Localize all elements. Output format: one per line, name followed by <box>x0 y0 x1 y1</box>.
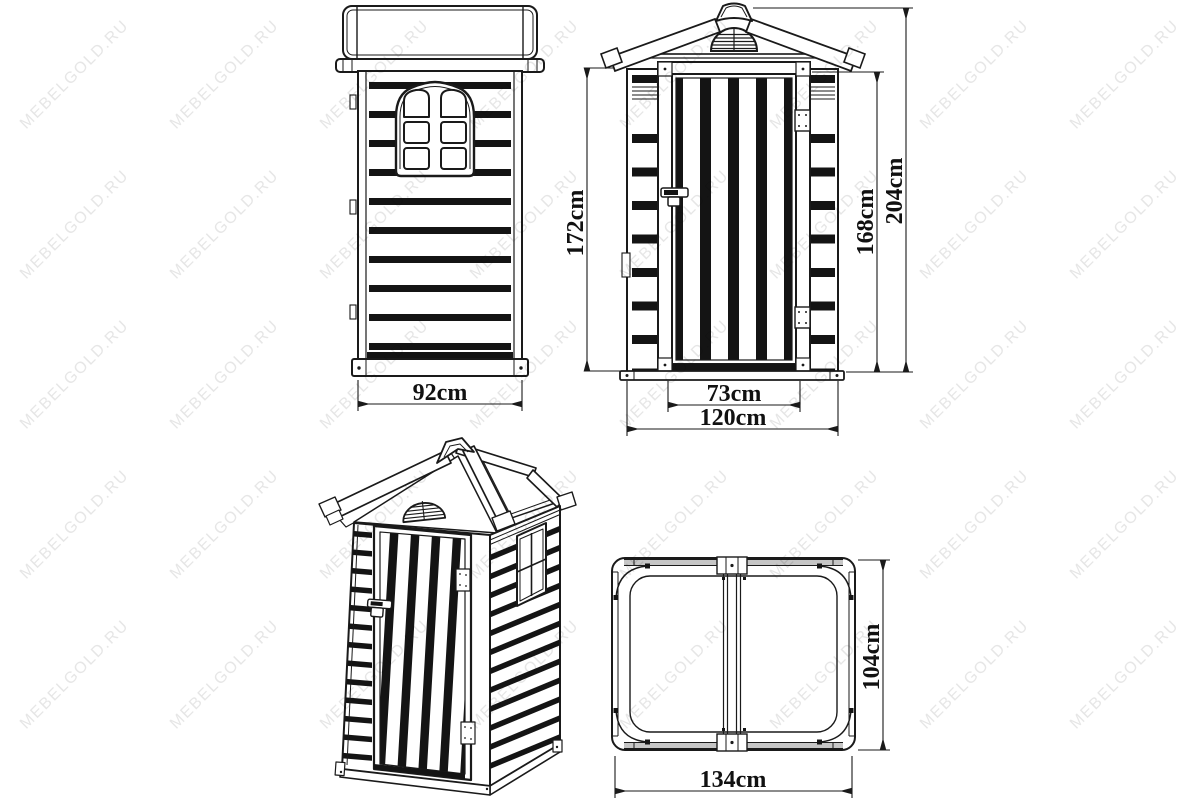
side-base-rail <box>352 359 528 376</box>
front-right-slats <box>810 123 835 371</box>
plan-width-dimension-label: 134cm <box>700 767 767 793</box>
technical-drawing-svg: 92cm 172cm <box>0 0 1200 800</box>
door-width-dimension-label: 73cm <box>707 381 762 407</box>
roof-side-profile <box>336 6 544 72</box>
wall-bracket <box>622 253 630 277</box>
wall-height-dimension-label: 172cm <box>563 190 589 257</box>
side-width-dimension-label: 92cm <box>413 380 468 406</box>
side-window-perspective <box>517 523 546 606</box>
dimension-104cm: 104cm <box>858 560 890 750</box>
plan-depth-dimension-label: 104cm <box>859 624 885 691</box>
hinge-mark <box>350 305 356 319</box>
dimension-172cm: 172cm <box>563 68 622 371</box>
window-pane <box>404 148 429 169</box>
front-elevation-view: 73cm 120cm 168cm 204cm <box>601 4 913 437</box>
door-hinge-bottom <box>795 307 810 328</box>
perspective-view <box>319 438 576 795</box>
front-left-slats <box>632 123 657 371</box>
hinge-mark <box>350 200 356 214</box>
door-height-dimension-label: 168cm <box>853 189 879 256</box>
front-base-rail <box>620 371 844 380</box>
door-planks-perspective <box>380 532 465 774</box>
side-elevation-view: 92cm 172cm <box>336 6 622 411</box>
door-planks <box>676 78 792 360</box>
window-pane <box>441 122 466 143</box>
hinge-mark <box>350 95 356 109</box>
window-pane <box>441 90 466 117</box>
window-pane <box>404 122 429 143</box>
side-window <box>396 82 474 176</box>
overall-height-dimension-label: 204cm <box>882 158 908 225</box>
window-pane <box>441 148 466 169</box>
window-pane <box>404 90 429 117</box>
overall-width-dimension-label: 120cm <box>700 405 767 431</box>
door-hinge-top <box>795 110 810 131</box>
shed-dimension-diagram: 92cm 172cm <box>0 0 1200 800</box>
front-roof <box>601 4 865 72</box>
dimension-134cm: 134cm <box>615 756 852 798</box>
dimension-92cm: 92cm <box>358 380 522 411</box>
front-door <box>658 62 810 372</box>
plan-view: 104cm 134cm <box>612 557 890 798</box>
